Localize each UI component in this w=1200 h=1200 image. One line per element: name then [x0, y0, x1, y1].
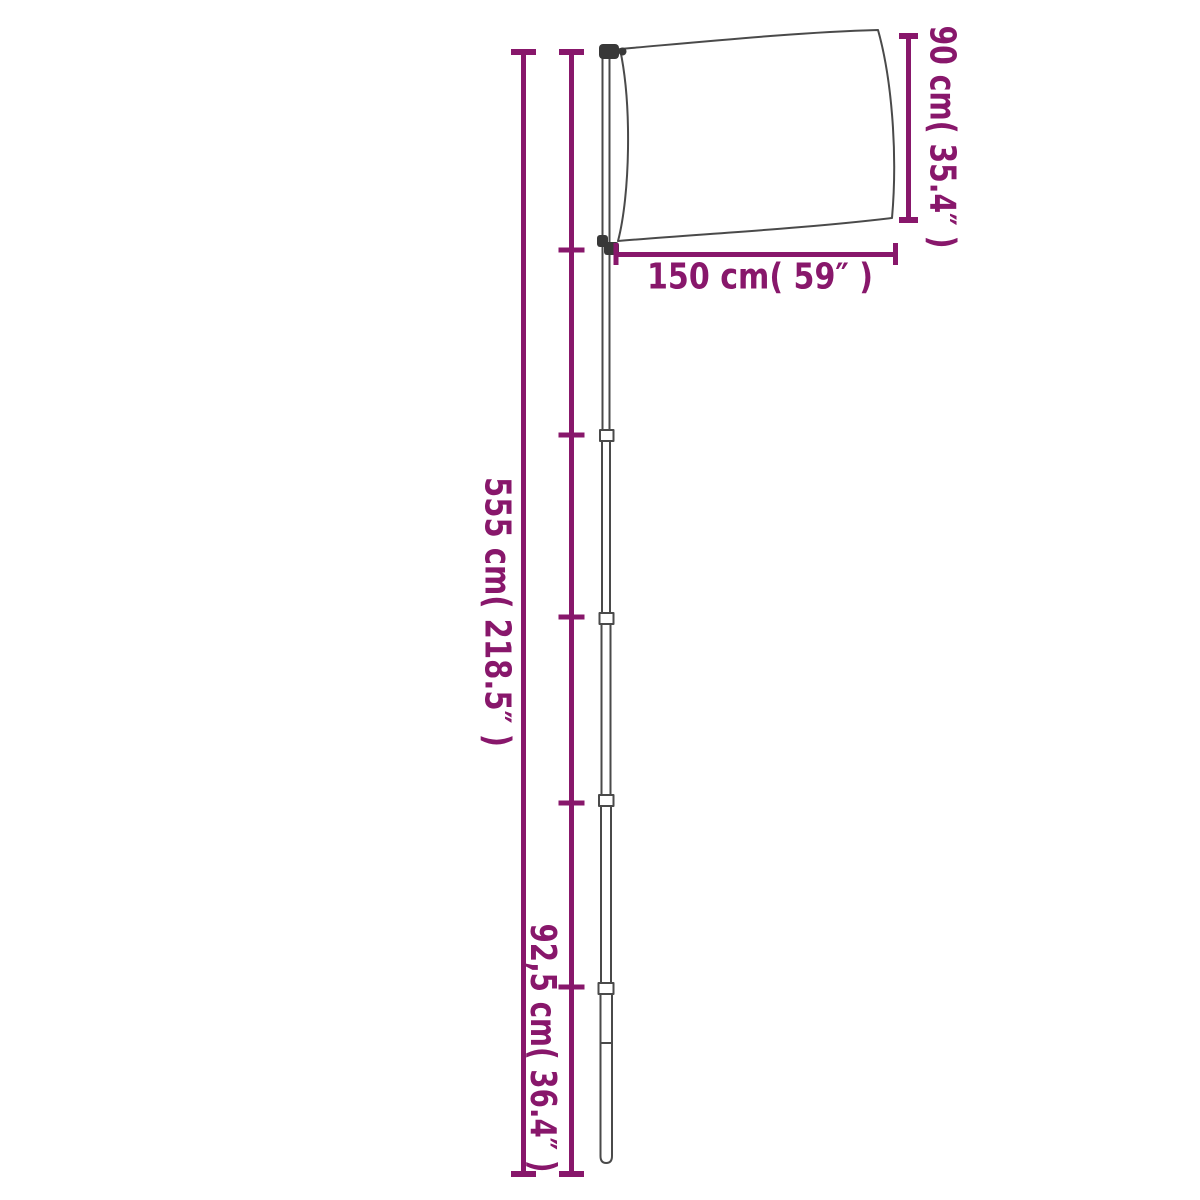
pole-section-5	[601, 994, 613, 1163]
flag-shape	[618, 30, 894, 241]
flag-width-label: 150 cm( 59″ )	[647, 257, 873, 298]
pole-height-top-cap	[511, 49, 536, 55]
dimension-pole-sections: 92,5 cm( 36.4″ )	[522, 49, 585, 1177]
pole-joint-collar-4	[599, 983, 614, 994]
pole-section-label: 92,5 cm( 36.4″ )	[522, 924, 563, 1173]
pole-section-4	[601, 806, 611, 983]
section-tick	[559, 615, 585, 620]
section-tick	[559, 248, 585, 253]
pole-section-2	[602, 441, 610, 613]
section-tick	[559, 433, 585, 438]
pole-top-clamp	[599, 44, 619, 59]
flag-height-label: 90 cm( 35.4″ )	[922, 26, 963, 249]
diagram-svg: 555 cm( 218.5″ ) 92,5 cm( 36.4″ ) 90 cm(…	[0, 0, 1200, 1200]
flag-height-bottom-cap	[899, 217, 918, 223]
section-tick	[559, 801, 585, 806]
dimension-flag-height: 90 cm( 35.4″ )	[899, 26, 963, 249]
pole-top-clamp-knob	[619, 48, 627, 56]
pole-joint-collar-3	[599, 795, 614, 806]
pole-height-label: 555 cm( 218.5″ )	[477, 477, 518, 747]
flag-width-right-cap	[893, 243, 898, 265]
dimension-flag-width: 150 cm( 59″ )	[614, 243, 899, 298]
flag-and-pole-drawing	[597, 30, 894, 1163]
pole-joint-collar-2	[600, 613, 614, 624]
section-top-cap	[559, 49, 584, 55]
flag-width-left-cap	[614, 243, 619, 265]
pole-joint-collar-1	[600, 430, 614, 441]
flag-height-top-cap	[899, 33, 918, 39]
pole-section-3	[602, 624, 611, 795]
product-dimension-diagram: 555 cm( 218.5″ ) 92,5 cm( 36.4″ ) 90 cm(…	[0, 0, 1200, 1200]
